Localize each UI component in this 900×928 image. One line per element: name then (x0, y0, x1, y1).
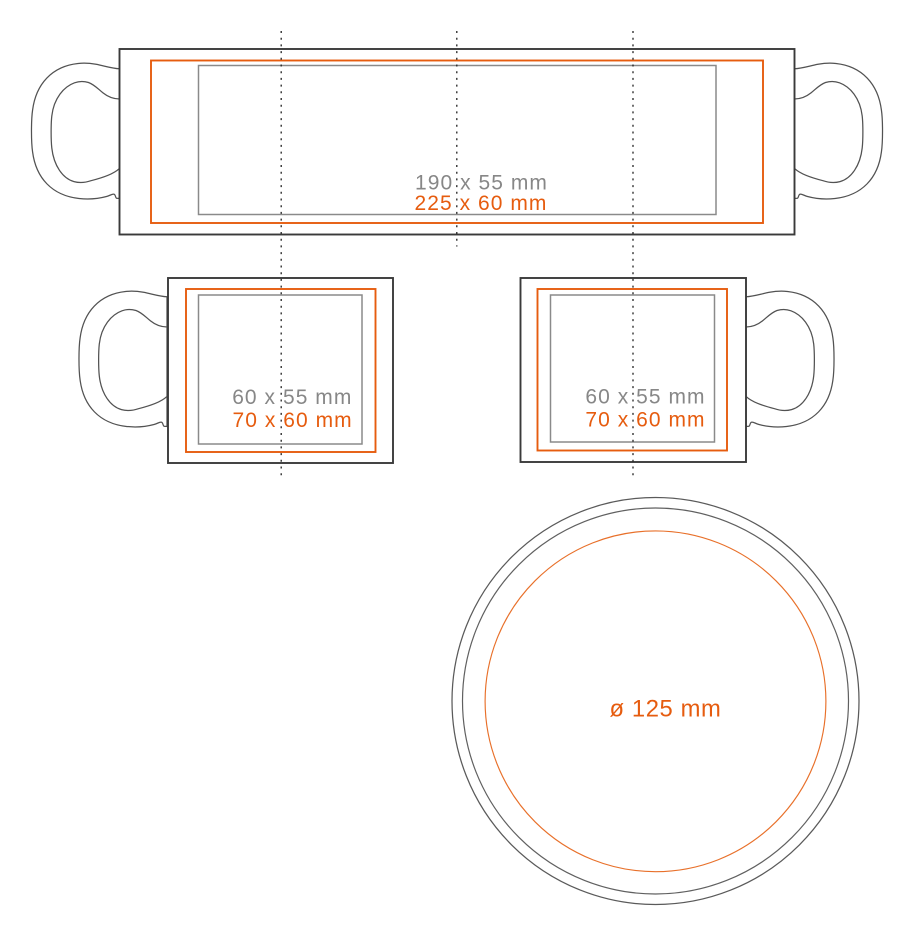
svg-text:70 x 60 mm: 70 x 60 mm (232, 409, 352, 432)
svg-text:60 x 55 mm: 60 x 55 mm (232, 386, 352, 409)
svg-text:190 x 55 mm: 190 x 55 mm (415, 171, 548, 194)
svg-text:225 x 60 mm: 225 x 60 mm (415, 192, 548, 215)
svg-text:60 x 55 mm: 60 x 55 mm (585, 386, 705, 409)
svg-text:ø 125 mm: ø 125 mm (610, 696, 722, 723)
svg-text:70 x 60 mm: 70 x 60 mm (585, 409, 705, 432)
